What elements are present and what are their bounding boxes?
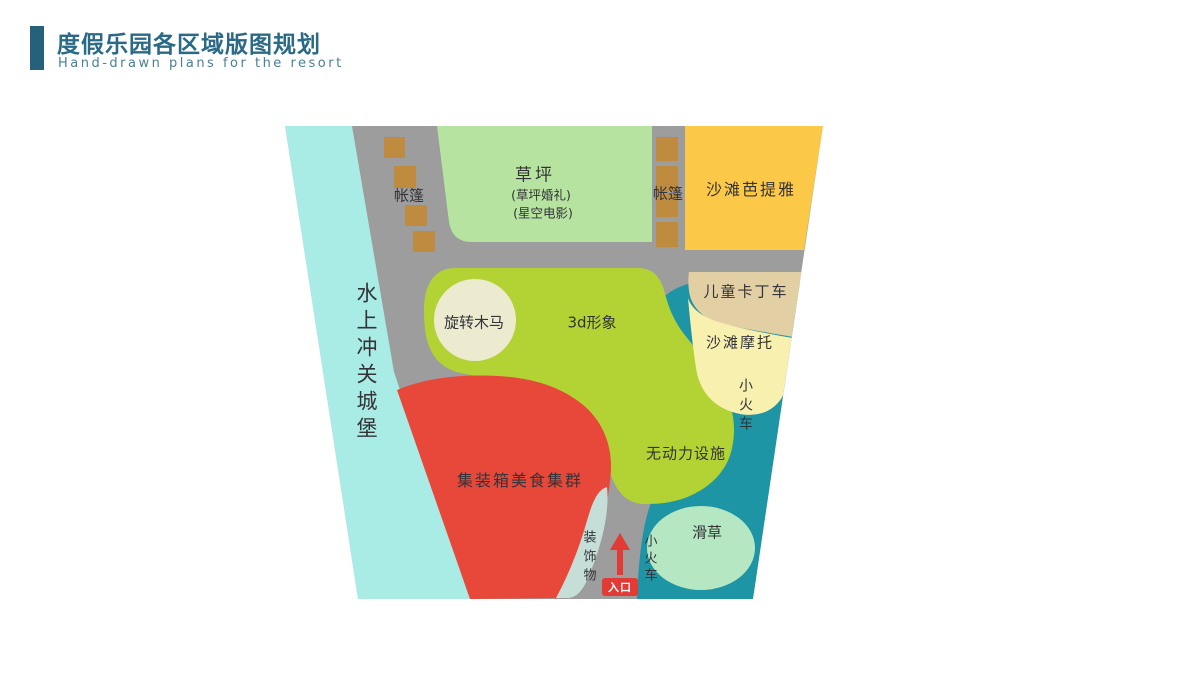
label-small-train-bottom: 小火车 (640, 534, 659, 585)
label-beach-moto: 沙滩摩托 (706, 332, 774, 353)
slide: 度假乐园各区域版图规划 Hand-drawn plans for the res… (0, 0, 1200, 675)
label-lawn-wedding: (草坪婚礼) (511, 185, 571, 204)
label-entrance: 入口 (608, 579, 632, 595)
label-container-food: 集装箱美食集群 (457, 467, 583, 491)
label-starry-movie: (星空电影) (513, 203, 573, 222)
label-small-train: 小火车 (735, 378, 755, 435)
label-tents-right: 帐篷 (653, 183, 683, 204)
label-kids-karting: 儿童卡丁车 (703, 281, 788, 302)
label-lawn: 草坪 (515, 161, 555, 186)
label-water-castle: 水上冲关城堡 (351, 282, 381, 444)
label-3d: 3d形象 (567, 312, 616, 333)
label-tents-left: 帐篷 (394, 185, 424, 206)
resort-map (0, 0, 1200, 675)
label-beach-pattaya: 沙滩芭提雅 (706, 176, 796, 200)
label-decorations: 装饰物 (579, 530, 598, 587)
label-grass-skiing: 滑草 (692, 522, 722, 543)
label-non-powered: 无动力设施 (646, 443, 726, 464)
label-carousel: 旋转木马 (444, 312, 504, 333)
zone-grass-skiing (647, 506, 755, 590)
